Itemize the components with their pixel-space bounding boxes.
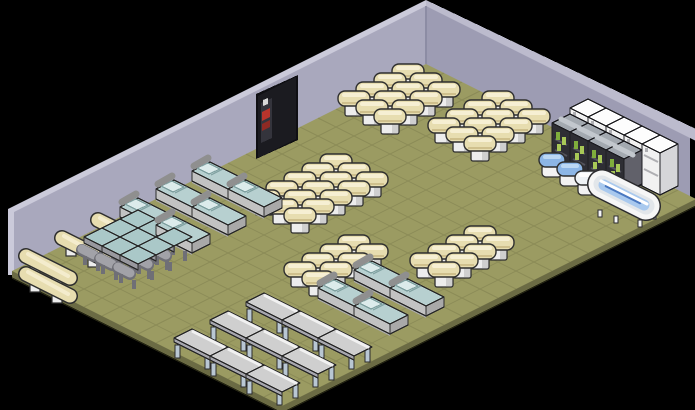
fridge[interactable] <box>642 135 678 195</box>
vending-machine-glimpse-icon <box>261 98 272 143</box>
room-viewport <box>0 0 695 410</box>
habbo-room-canvas <box>0 0 695 410</box>
